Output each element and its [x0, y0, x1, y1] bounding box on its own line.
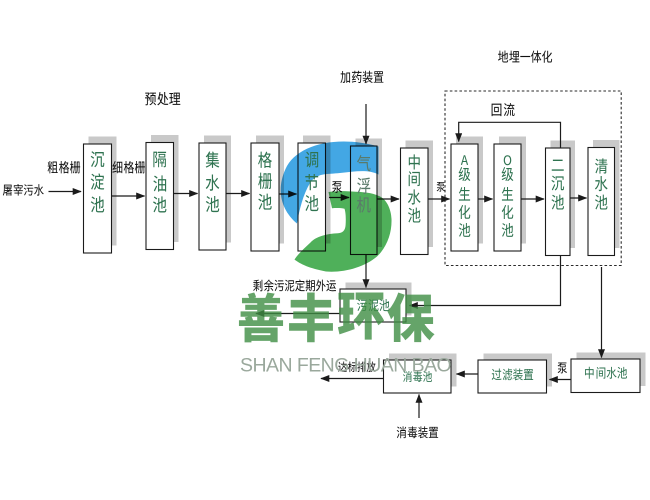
svg-text:SHAN FENG HUAN BAO: SHAN FENG HUAN BAO	[240, 355, 453, 377]
